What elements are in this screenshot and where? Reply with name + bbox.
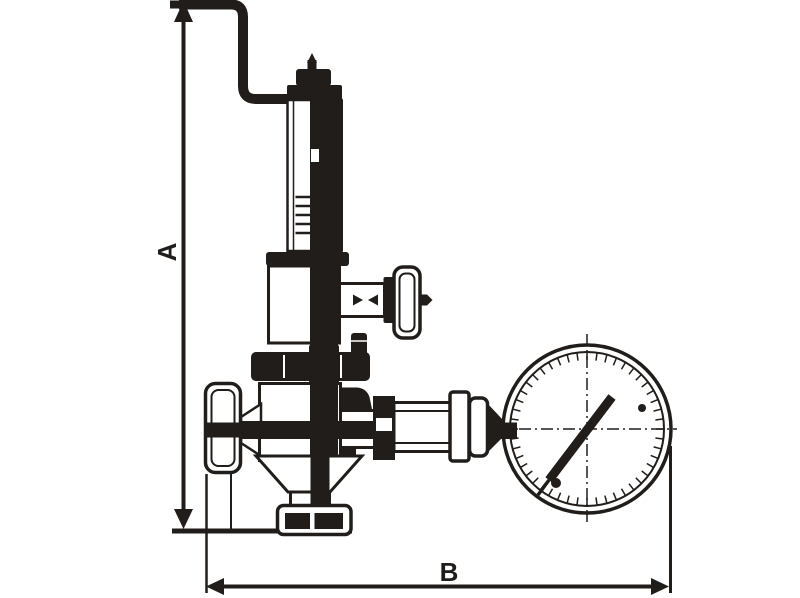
pipe-ring-2 <box>470 398 488 456</box>
gauge-piping <box>374 392 502 461</box>
body-center-band <box>238 421 375 439</box>
outlet-section <box>256 456 362 535</box>
valve-technical-drawing: A B <box>0 0 800 598</box>
drawing-canvas: A B <box>0 0 800 598</box>
column-notch <box>311 149 319 162</box>
adjusting-screw <box>287 53 342 100</box>
dimension-b-arrow-right <box>651 578 669 595</box>
spring-housing <box>288 100 344 251</box>
pipe-ring-1 <box>450 392 469 461</box>
side-tee <box>340 267 433 338</box>
dimension-b-label: B <box>440 557 459 587</box>
body-taper <box>256 456 362 492</box>
side-handwheel <box>394 267 420 338</box>
mid-flange <box>266 252 349 266</box>
inlet-hub-band <box>207 423 239 438</box>
vertical-fitting <box>374 398 394 459</box>
side-stem-tip <box>420 295 433 306</box>
lower-spring-housing <box>269 266 341 354</box>
inlet-handwheel <box>206 384 241 473</box>
cap-flange <box>287 85 342 100</box>
needle-hub-dot <box>551 478 561 488</box>
spring-column <box>310 100 343 251</box>
gauge-stem <box>499 423 517 440</box>
cap <box>296 69 331 86</box>
dimension-a-arrow-down <box>174 509 193 529</box>
coupling-block <box>394 403 450 452</box>
dial-marker-dot <box>638 404 646 412</box>
dimension-a-label: A <box>152 242 182 261</box>
valve-body <box>238 383 375 461</box>
gooseneck-pipe <box>179 5 288 100</box>
dimension-a <box>170 1 196 529</box>
dimension-b-arrow-left <box>206 578 224 595</box>
pressure-gauge <box>497 334 677 524</box>
